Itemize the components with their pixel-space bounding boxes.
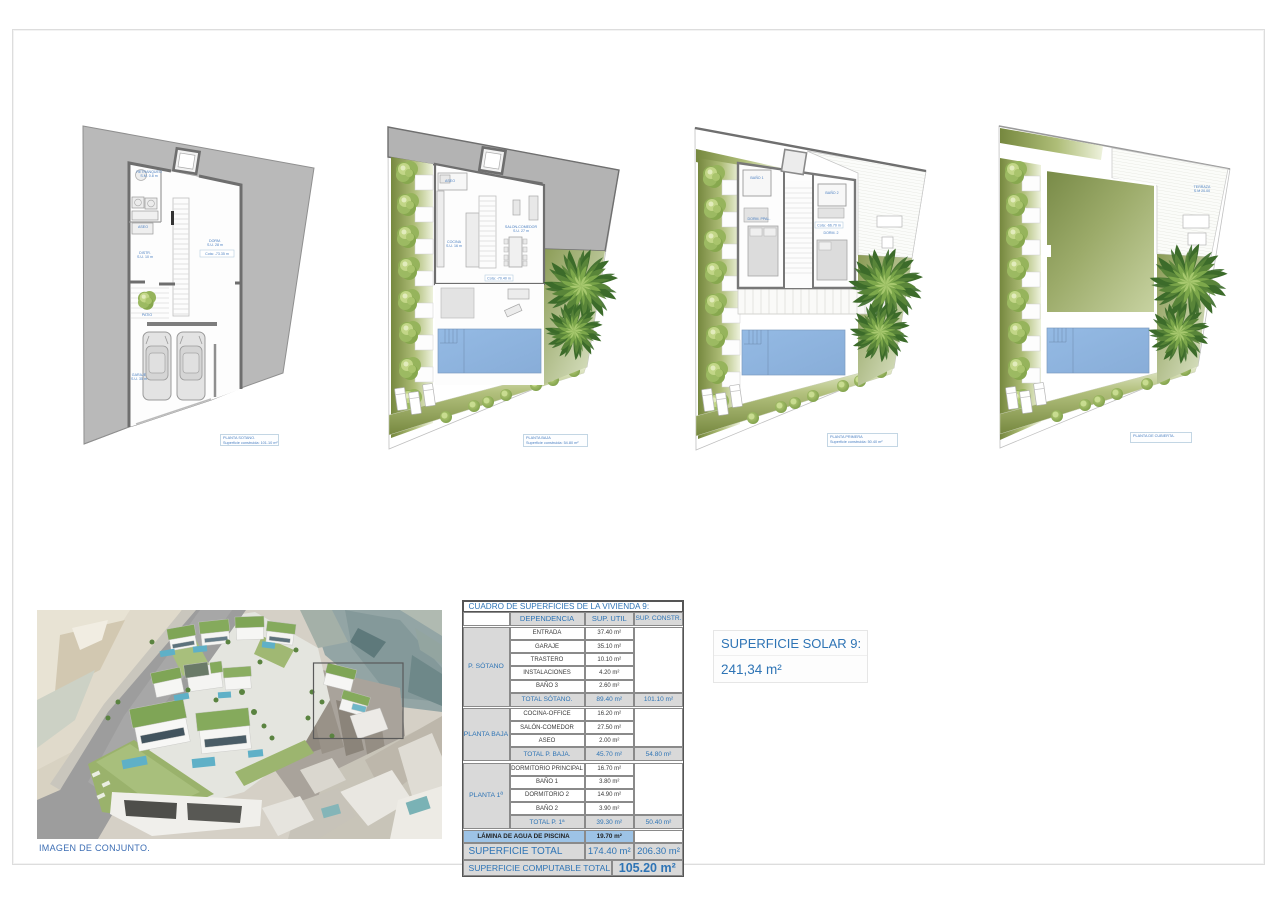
- svg-text:DORM. PPAL.: DORM. PPAL.: [748, 217, 771, 221]
- svg-text:Cota: -70.40 m: Cota: -70.40 m: [487, 277, 511, 281]
- svg-text:BAÑO 2: BAÑO 2: [825, 190, 838, 195]
- svg-text:ASEO: ASEO: [445, 179, 455, 183]
- svg-text:Cota: -66.70 m: Cota: -66.70 m: [817, 224, 841, 228]
- svg-text:Cota: -73.35 m: Cota: -73.35 m: [205, 252, 229, 256]
- svg-text:S.U. 35 m: S.U. 35 m: [131, 377, 147, 381]
- svg-text:BAÑO 1: BAÑO 1: [750, 175, 763, 180]
- svg-text:S.M 20.00: S.M 20.00: [1194, 189, 1210, 193]
- svg-text:S.U. 10 m: S.U. 10 m: [137, 255, 153, 259]
- svg-text:S.M. 0.8 m: S.M. 0.8 m: [140, 174, 157, 178]
- svg-text:DORM. 2: DORM. 2: [824, 231, 839, 235]
- svg-text:S.U. 27 m: S.U. 27 m: [513, 229, 529, 233]
- svg-text:S.U. 16 m: S.U. 16 m: [446, 244, 462, 248]
- svg-text:ASEO: ASEO: [138, 225, 148, 229]
- svg-text:PATIO: PATIO: [142, 313, 152, 317]
- svg-text:S.U. 28 m: S.U. 28 m: [207, 243, 223, 247]
